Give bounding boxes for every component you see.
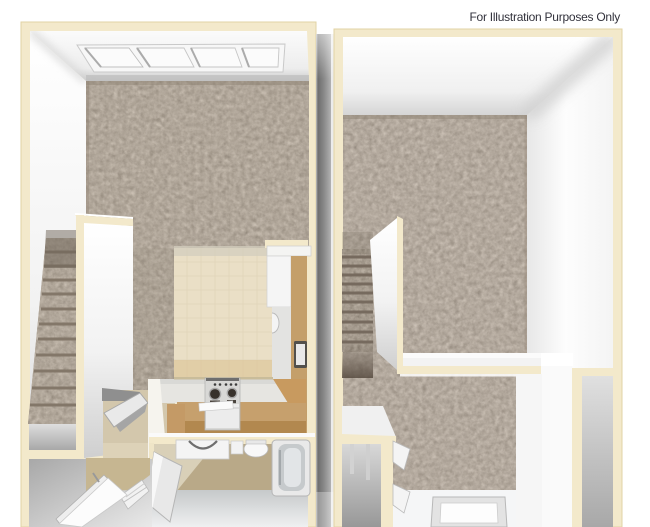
svg-text:For Illustration Purposes Only: For Illustration Purposes Only bbox=[469, 10, 620, 24]
